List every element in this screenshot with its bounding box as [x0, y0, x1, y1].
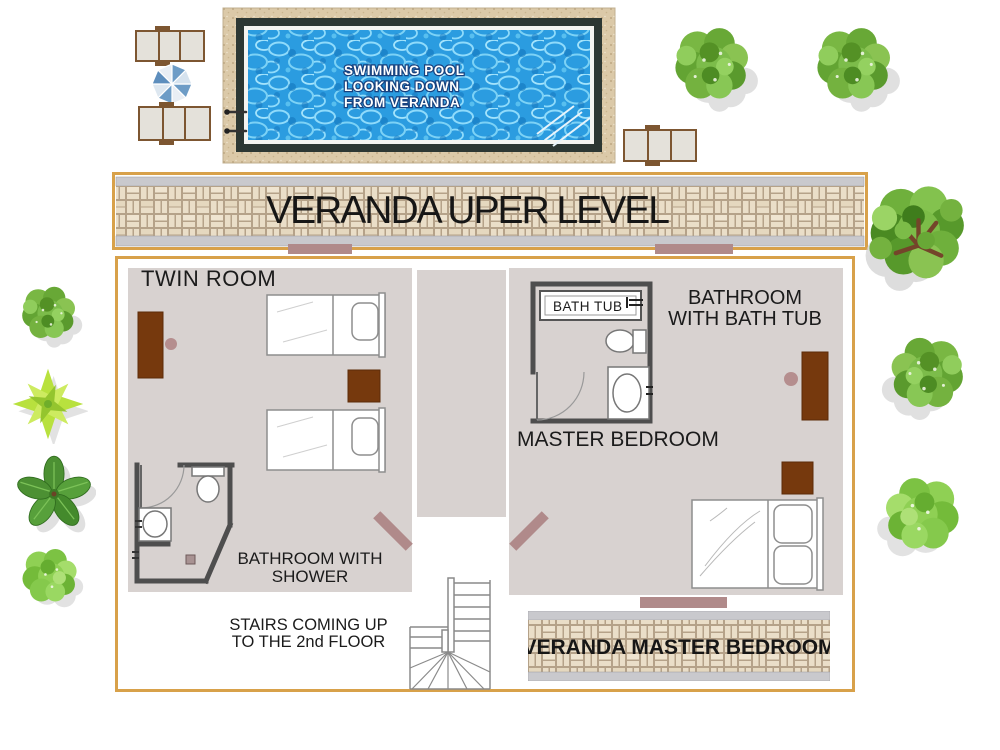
bush-icon — [656, 16, 774, 126]
bath-tub-label: BATH TUB — [553, 299, 623, 314]
bathroom-shower-label: BATHROOM WITH SHOWER — [208, 550, 412, 585]
bathtub: BATH TUB — [540, 291, 643, 320]
twin-room-label: TWIN ROOM — [141, 266, 276, 292]
floorplan-page: SWIMMING POOL LOOKING DOWN FROM VERANDA … — [0, 0, 1000, 750]
bush-icon — [8, 278, 94, 358]
door-knob — [165, 338, 177, 350]
veranda-upper-banner: VERANDA UPER LEVEL — [112, 172, 868, 250]
shower-drain — [186, 555, 195, 564]
sun-lounger — [623, 129, 697, 162]
bush-icon — [798, 16, 916, 126]
swimming-pool: SWIMMING POOL LOOKING DOWN FROM VERANDA — [222, 6, 616, 164]
door-marker-veranda — [640, 597, 727, 608]
bathroom-tub-label: BATHROOM WITH BATH TUB — [635, 288, 855, 330]
veranda-master-label: VERANDA MASTER BEDROOM — [528, 636, 830, 659]
stairs — [410, 578, 490, 689]
sun-lounger — [135, 30, 205, 62]
wardrobe — [802, 352, 828, 420]
door-marker-twin — [373, 511, 413, 551]
single-bed-2 — [267, 408, 385, 472]
toilet — [606, 330, 646, 353]
sink — [135, 508, 171, 541]
door-swing-arc — [537, 372, 584, 420]
double-bed — [692, 498, 823, 590]
stairs-label: STAIRS COMING UP TO THE 2nd FLOOR — [201, 617, 416, 651]
bush-icon — [8, 540, 96, 622]
tree-icon — [853, 170, 979, 306]
nightstand — [782, 462, 813, 494]
door-swing-arc — [141, 465, 184, 508]
veranda-upper-label: VERANDA UPER LEVEL — [266, 189, 669, 232]
sink — [608, 367, 653, 419]
door-marker — [655, 244, 733, 254]
door-marker — [288, 244, 352, 254]
umbrella-icon — [150, 62, 194, 106]
svg-text:FROM VERANDA: FROM VERANDA — [344, 95, 460, 110]
sun-lounger — [138, 106, 211, 141]
svg-text:LOOKING DOWN: LOOKING DOWN — [344, 79, 460, 94]
bush-icon — [864, 460, 974, 582]
toilet — [192, 467, 224, 502]
veranda-master-banner: VERANDA MASTER BEDROOM — [528, 611, 830, 681]
spiky-plant-icon — [6, 364, 90, 444]
nightstand — [348, 370, 380, 402]
door-knob — [784, 372, 798, 386]
svg-text:SWIMMING POOL: SWIMMING POOL — [344, 63, 465, 78]
single-bed-1 — [267, 293, 385, 357]
floor-plan: BATH TUB — [115, 256, 855, 692]
wardrobe — [138, 312, 163, 378]
pool-label: SWIMMING POOL LOOKING DOWN FROM VERANDA — [344, 63, 465, 110]
bush-icon — [870, 320, 978, 440]
master-bedroom-label: MASTER BEDROOM — [517, 428, 719, 452]
monstera-plant-icon — [10, 452, 98, 536]
door-marker-master — [509, 511, 549, 551]
